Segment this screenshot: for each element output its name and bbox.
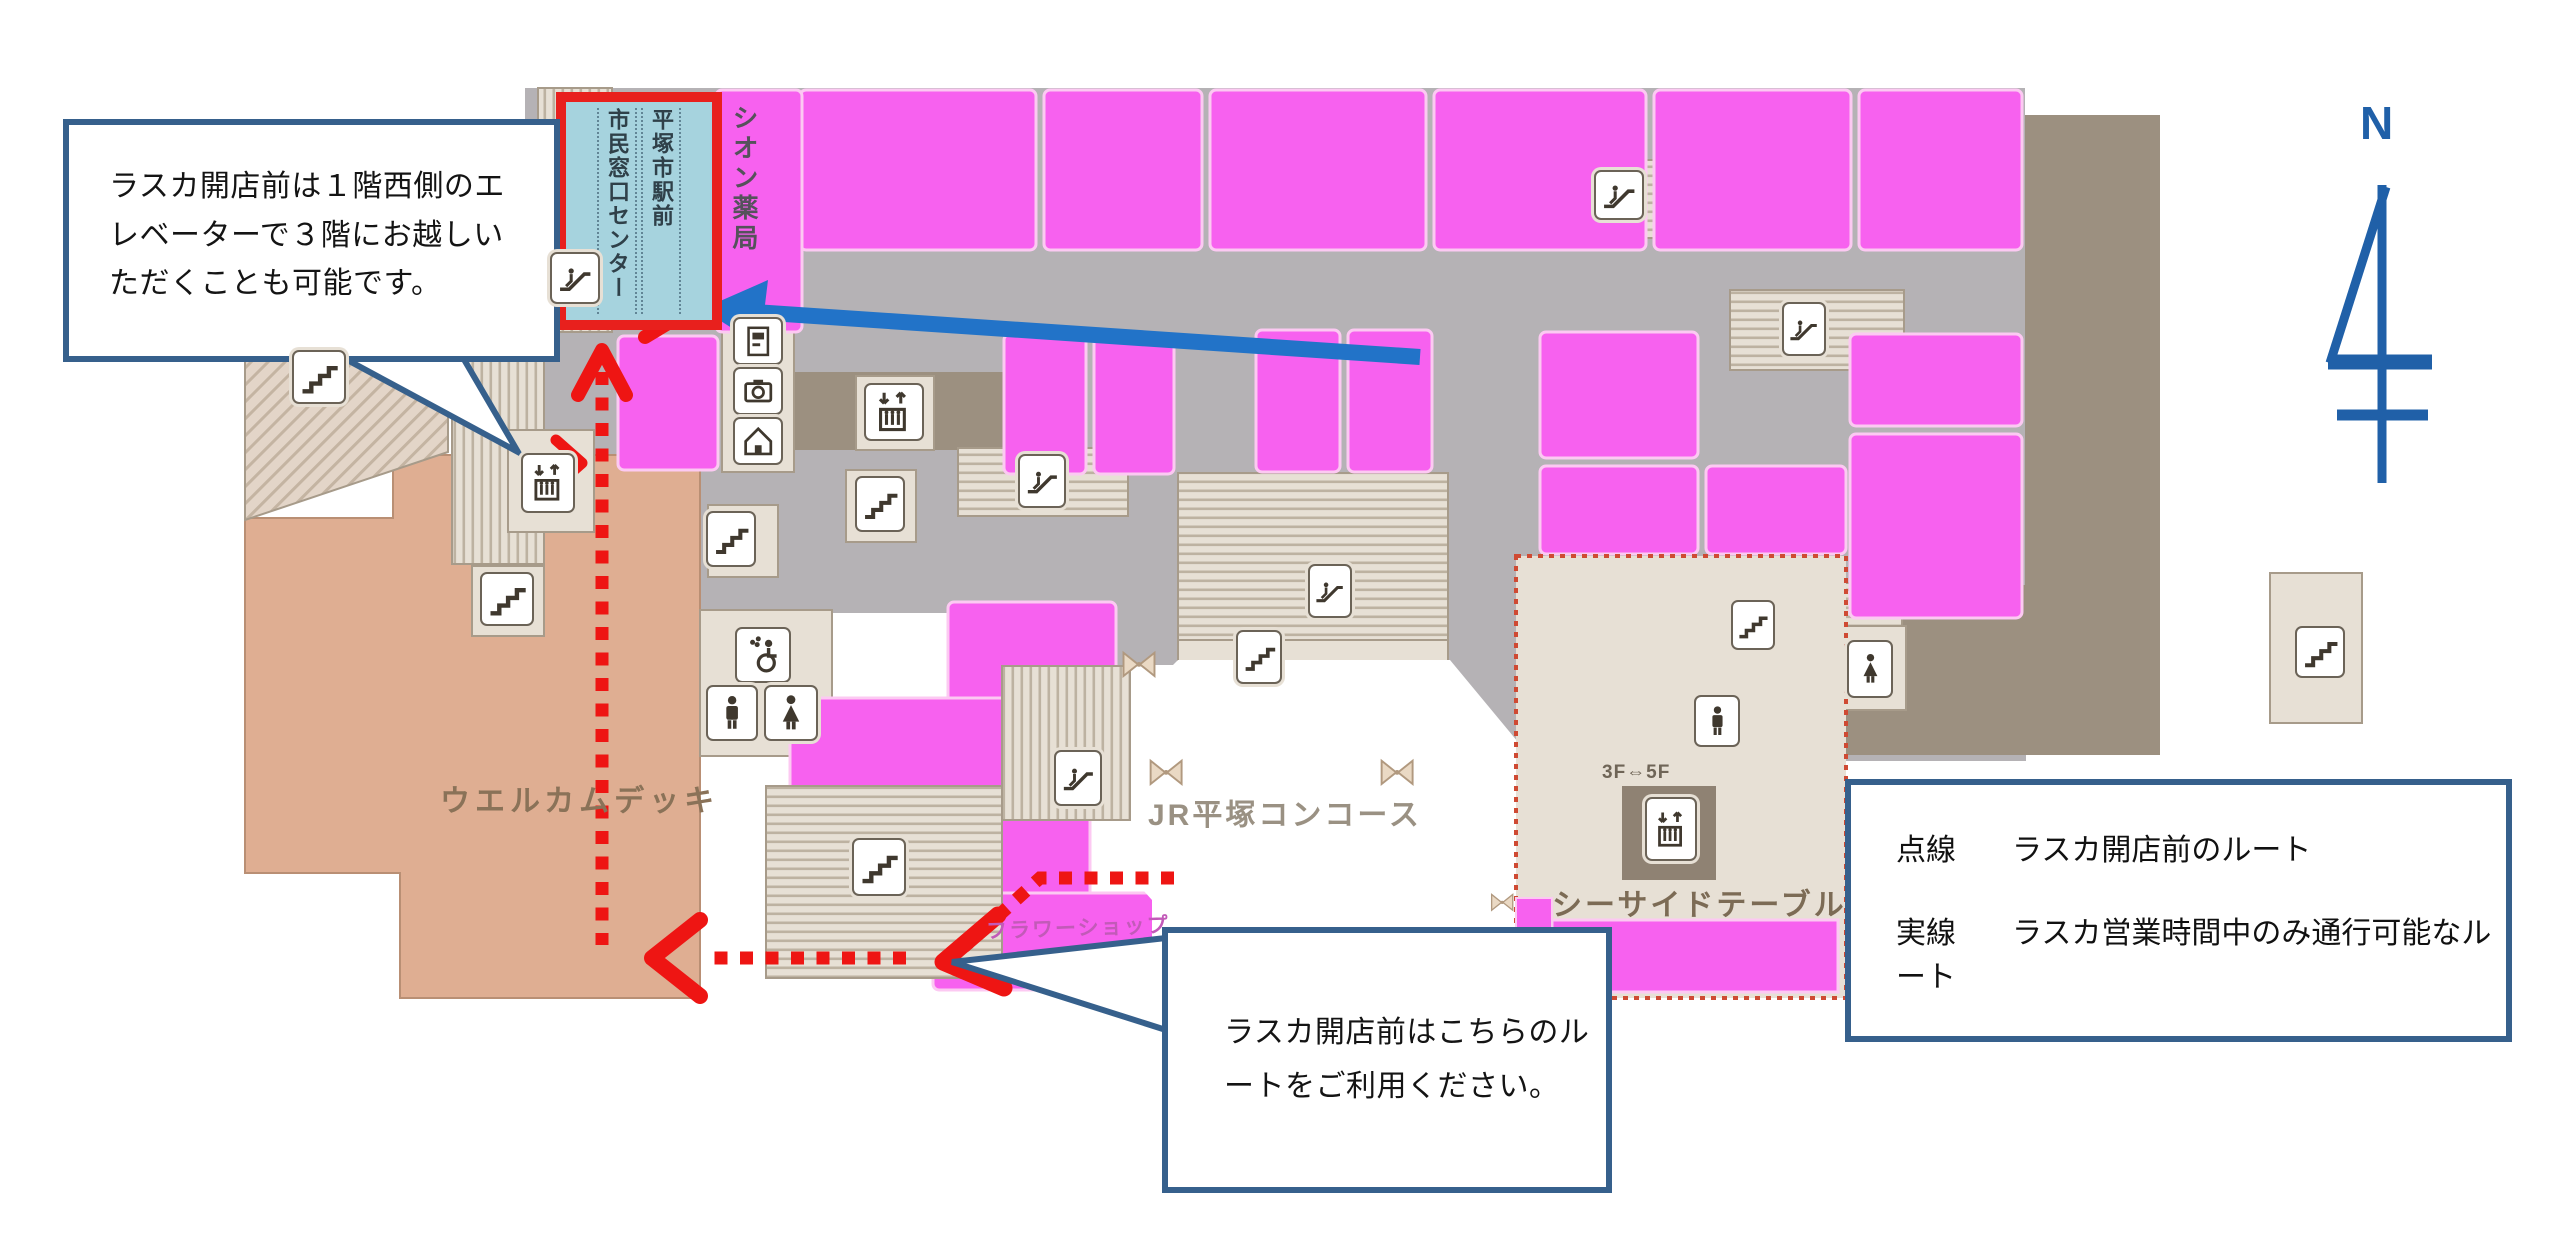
callout-south-text: ラスカ開店前はこちらのルートをご利用ください。 [1224, 1006, 1606, 1114]
info-atm-icon [733, 317, 783, 365]
north-escalator-icon [1018, 454, 1066, 508]
callout-south-route: ラスカ開店前はこちらのルートをご利用ください。 [1162, 927, 1612, 1193]
central-stairs-icon [855, 476, 905, 532]
far-east-stairs-icon [2295, 626, 2345, 678]
womens-toilet-icon [764, 685, 818, 741]
gate-bow-2-icon [1142, 750, 1190, 794]
east-stairs-icon [1731, 600, 1775, 650]
welcome-deck-label: ウエルカムデッキ [440, 776, 719, 820]
civic-center-label-col2: 市民窓口センター [597, 108, 637, 314]
civic-center-label-col1: 平塚市駅前 [641, 108, 681, 314]
seaside-table-label: シーサイドテーブル [1552, 880, 1847, 924]
pharmacy-label: シオン薬局 [726, 104, 763, 334]
floor-map-page: 平塚市駅前 市民窓口センター シオン薬局 ウエルカムデッキ JR平塚コンコース … [0, 0, 2549, 1241]
north-elevator-icon [864, 383, 924, 441]
grand-stair-escalator-icon [1308, 564, 1352, 618]
northeast-escalator-icon [1594, 170, 1644, 220]
south-escalator-icon [1054, 750, 1102, 806]
legend-item-dotted: 点線ラスカ開店前のルート [1896, 825, 2506, 869]
accessible-toilet-icon [735, 627, 791, 683]
legend-solid-desc: ラスカ営業時間中のみ通行可能なルート [1896, 917, 2491, 994]
callout-west-elevator: ラスカ開店前は１階西側のエレベーターで３階にお越しいただくことも可能です。 [63, 119, 560, 362]
gate-bow-3-icon [1373, 750, 1421, 794]
gate-bow-1-icon [1114, 642, 1164, 686]
central-west-stairs-icon [706, 511, 756, 567]
deck-grand-stairs-icon [852, 838, 906, 896]
deck-mid-stairs-icon [480, 572, 534, 626]
legend-dotted-desc: ラスカ開店前のルート [2012, 834, 2311, 867]
legend-dotted-term: 点線 [1896, 834, 1956, 867]
deck-west-stairs-icon [292, 350, 346, 404]
elevator-floors-label: 3F⇔5F [1602, 762, 1670, 784]
east-escalator-icon [1782, 302, 1826, 356]
west-elevator-icon [521, 453, 575, 513]
mens-toilet-icon [706, 685, 758, 741]
east-mens-toilet-icon [1694, 695, 1740, 747]
flower-shop-label: フラワーショップ [986, 909, 1171, 945]
compass-north-label: N [2360, 96, 2393, 150]
info-camera-icon [733, 367, 783, 415]
jr-concourse-label: JR平塚コンコース [1148, 790, 1422, 834]
legend-item-solid: 実線ラスカ営業時間中のみ通行可能なルート [1896, 908, 2506, 996]
east-womens-toilet-icon [1847, 640, 1893, 698]
info-house-icon [733, 417, 783, 465]
route-legend: 点線ラスカ開店前のルート 実線ラスカ営業時間中のみ通行可能なルート [1845, 779, 2512, 1042]
grand-stairs-icon [1236, 630, 1282, 684]
seaside-elevator-icon [1645, 797, 1697, 861]
west-upper-escalator-icon [550, 252, 600, 304]
gate-bow-4-icon [1487, 880, 1517, 924]
north-compass [2328, 185, 2432, 483]
callout-west-text: ラスカ開店前は１階西側のエレベーターで３階にお越しいただくことも可能です。 [109, 170, 505, 300]
legend-solid-term: 実線 [1896, 917, 1956, 950]
